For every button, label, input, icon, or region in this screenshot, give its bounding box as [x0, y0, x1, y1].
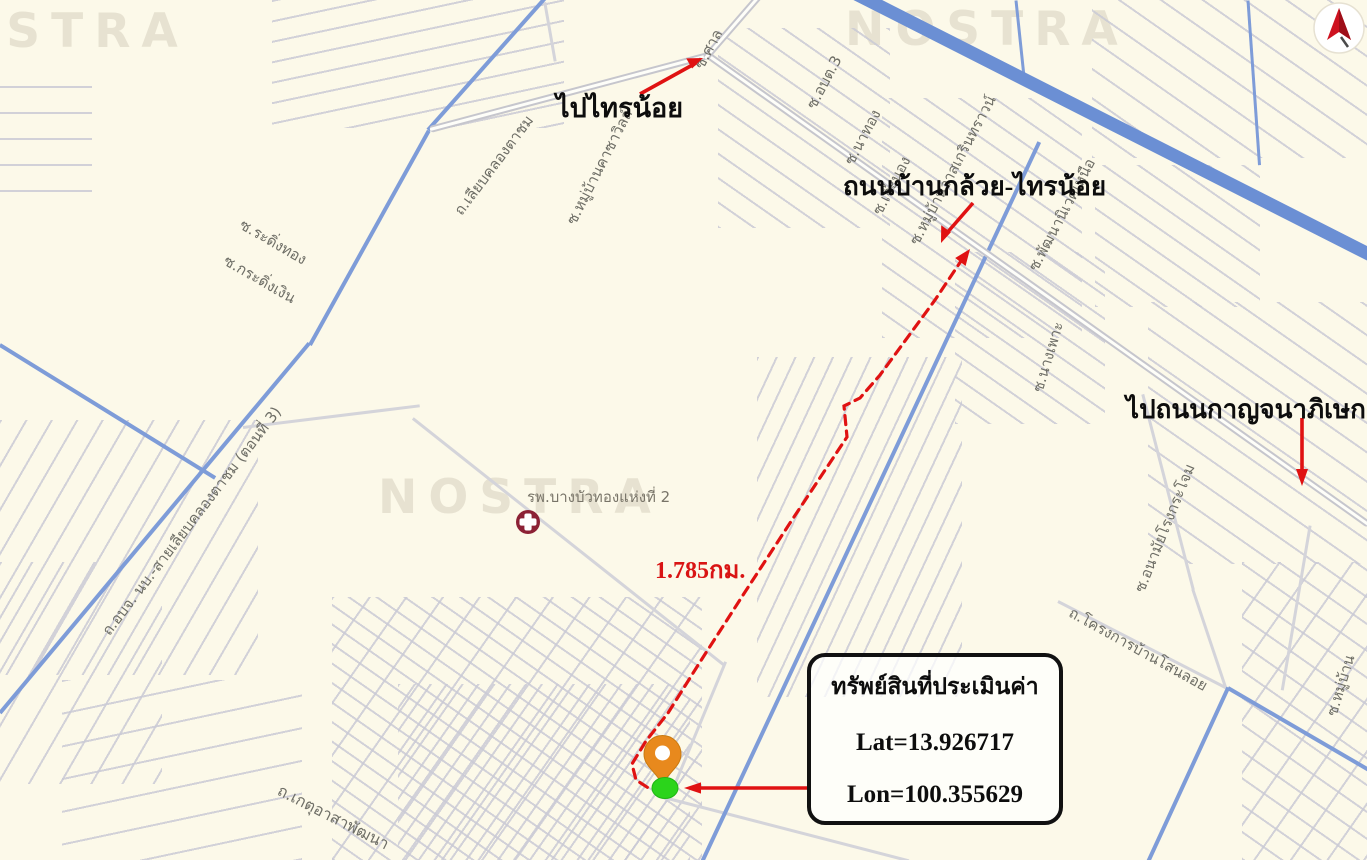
callout-latitude: Lat=13.926717 — [856, 729, 1014, 757]
label-to-kanchanaphisek: ไปถนนกาญจนาภิเษก — [1126, 389, 1366, 430]
arrow-callout-to-pin-icon — [684, 782, 808, 793]
hospital-label: รพ.บางบัวทองแห่งที่ 2 — [527, 485, 670, 509]
callout-title: ทรัพย์สินที่ประเมินค่า — [831, 669, 1038, 705]
street-label: ถ.โครงการบ้านโสนลอย — [1064, 601, 1212, 697]
map-canvas[interactable]: NOSTRA NOSTRA NOSTRA ถ.เลียบคลองตาชมซ.หม… — [0, 0, 1367, 860]
nostra-watermark: NOSTRA — [0, 4, 189, 59]
estate-comb — [62, 680, 302, 860]
callout-longitude: Lon=100.355629 — [847, 781, 1023, 809]
estate-comb — [1148, 302, 1367, 564]
green-dot-icon — [652, 778, 678, 799]
label-to-sai-noi: ไปไทรน้อย — [556, 86, 683, 129]
road-segment — [1146, 687, 1230, 860]
property-callout: ทรัพย์สินที่ประเมินค่า Lat=13.926717 Lon… — [807, 653, 1063, 825]
estate-comb — [1242, 562, 1367, 860]
estate-comb — [398, 684, 690, 860]
label-route-distance: 1.785กม. — [655, 550, 745, 589]
estate-comb — [0, 62, 92, 192]
label-road-name: ถนนบ้านกล้วย-ไทรน้อย — [843, 166, 1106, 207]
road-segment — [308, 130, 430, 346]
compass-north-icon[interactable] — [1314, 3, 1364, 53]
